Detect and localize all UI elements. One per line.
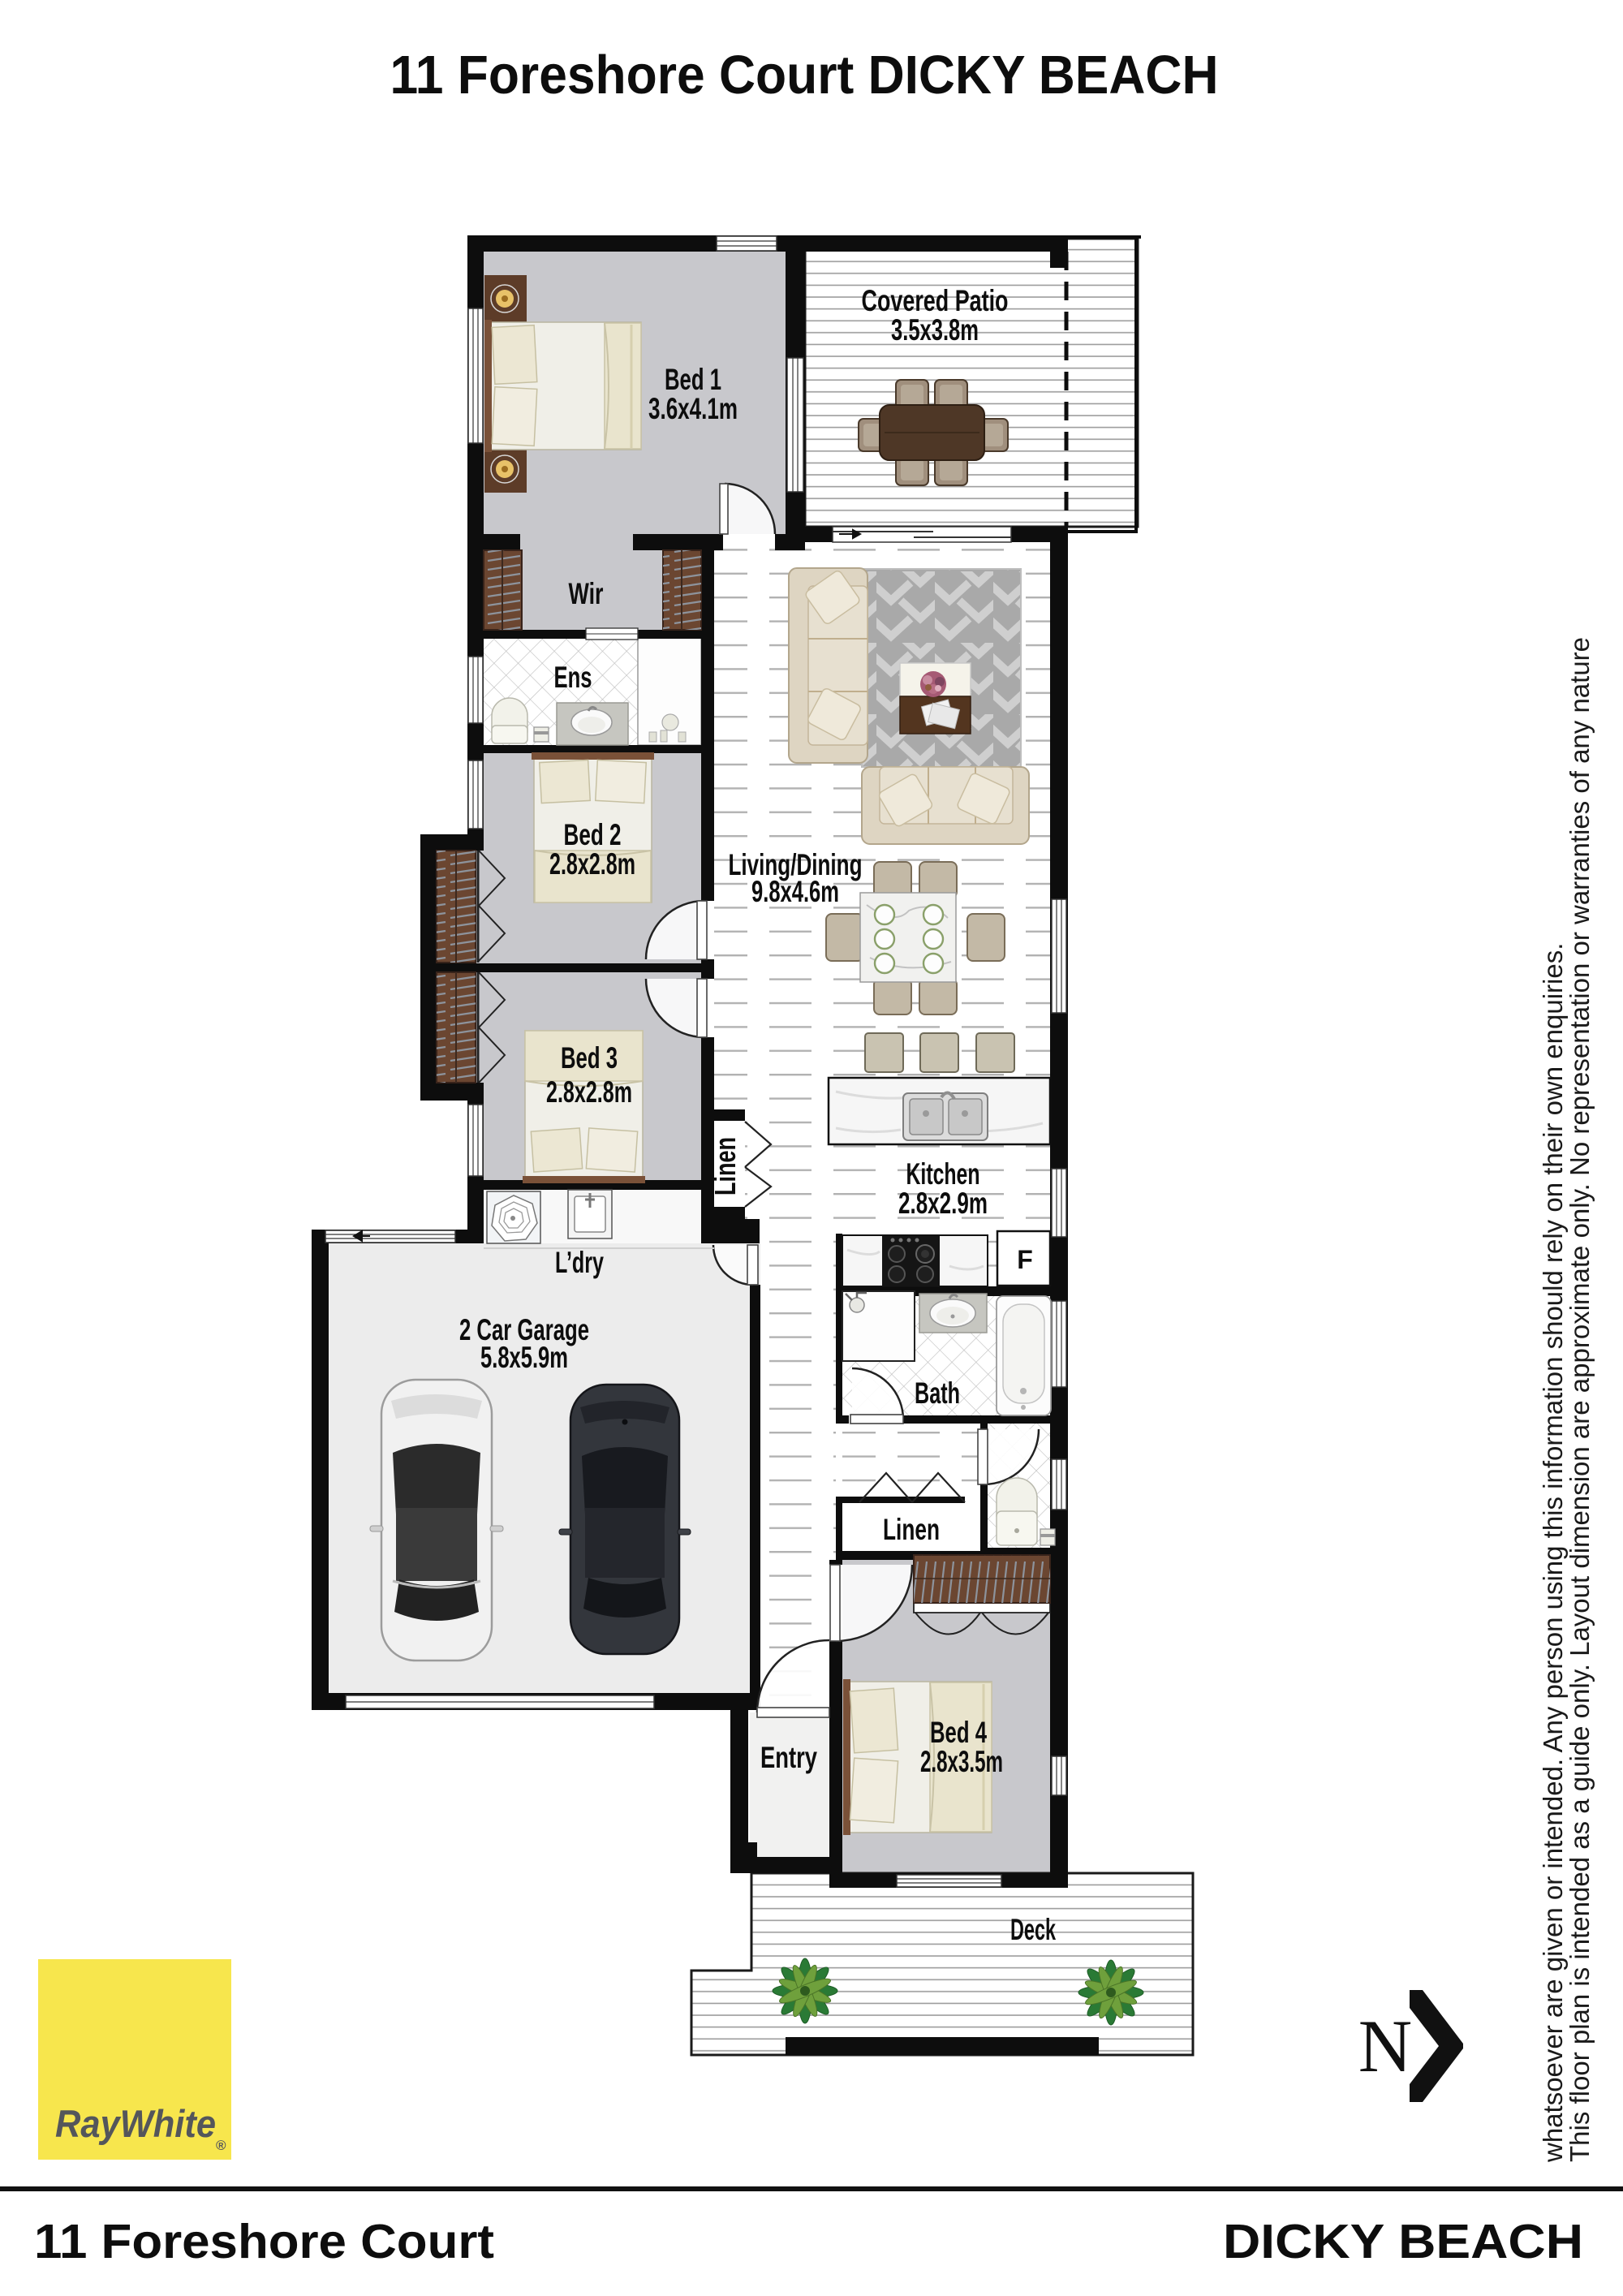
svg-text:11 Foreshore Court DICKY BEACH: 11 Foreshore Court DICKY BEACH bbox=[390, 45, 1219, 106]
svg-text:Bed 2: Bed 2 bbox=[564, 818, 622, 851]
svg-text:Wir: Wir bbox=[569, 577, 604, 610]
svg-text:5.8x5.9m: 5.8x5.9m bbox=[480, 1341, 568, 1374]
svg-text:2.8x2.8m: 2.8x2.8m bbox=[549, 847, 635, 881]
svg-text:®: ® bbox=[216, 2138, 226, 2153]
svg-text:2.8x2.9m: 2.8x2.9m bbox=[898, 1187, 988, 1220]
svg-text:L’dry: L’dry bbox=[555, 1246, 604, 1279]
svg-text:Bed 3: Bed 3 bbox=[561, 1041, 618, 1075]
svg-text:Bath: Bath bbox=[915, 1376, 960, 1410]
svg-text:Bed 4: Bed 4 bbox=[930, 1716, 987, 1749]
svg-text:DICKY BEACH: DICKY BEACH bbox=[1223, 2215, 1583, 2268]
svg-text:RayWhite: RayWhite bbox=[55, 2102, 216, 2145]
svg-text:2.8x2.8m: 2.8x2.8m bbox=[546, 1075, 632, 1109]
svg-text:F: F bbox=[1017, 1245, 1033, 1274]
svg-text:This floor plan is intended as: This floor plan is intended as a guide o… bbox=[1565, 637, 1595, 2162]
svg-text:Bed 1: Bed 1 bbox=[665, 363, 721, 396]
svg-text:2.8x3.5m: 2.8x3.5m bbox=[920, 1745, 1003, 1778]
svg-text:N: N bbox=[1358, 2005, 1412, 2087]
svg-text:3.6x4.1m: 3.6x4.1m bbox=[648, 392, 738, 425]
svg-text:Linen: Linen bbox=[883, 1513, 940, 1546]
svg-text:Covered Patio: Covered Patio bbox=[862, 284, 1009, 317]
svg-text:9.8x4.6m: 9.8x4.6m bbox=[751, 875, 839, 908]
svg-text:Ens: Ens bbox=[554, 661, 592, 694]
svg-text:11 Foreshore Court: 11 Foreshore Court bbox=[34, 2215, 494, 2268]
svg-text:Linen: Linen bbox=[708, 1137, 742, 1195]
svg-text:3.5x3.8m: 3.5x3.8m bbox=[891, 313, 979, 347]
svg-text:Deck: Deck bbox=[1010, 1913, 1056, 1946]
svg-text:Entry: Entry bbox=[760, 1741, 817, 1774]
svg-text:whatsoever are given or intend: whatsoever are given or intended. Any pe… bbox=[1538, 943, 1568, 2163]
svg-text:Kitchen: Kitchen bbox=[906, 1157, 980, 1191]
